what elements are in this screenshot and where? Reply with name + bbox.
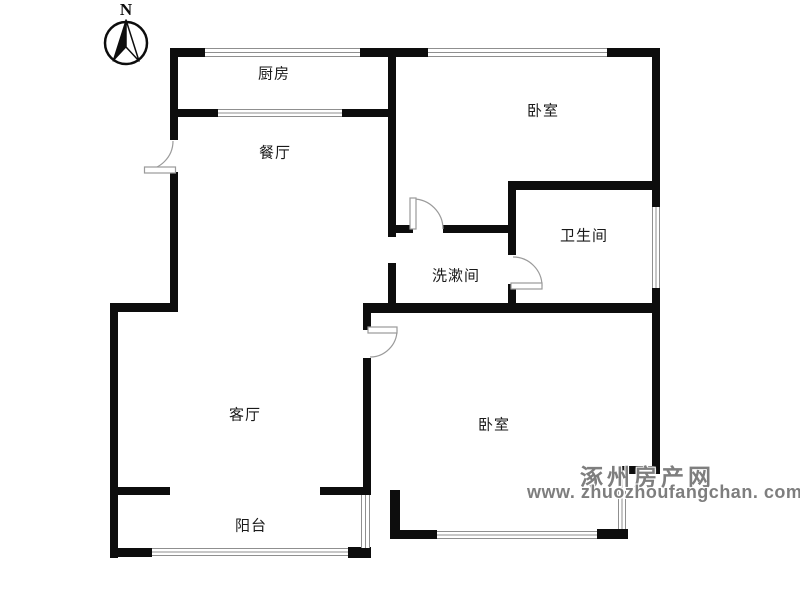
room-label-washroom: 洗漱间 — [432, 265, 480, 286]
entry-door — [144, 141, 176, 173]
room-label-kitchen: 厨房 — [258, 63, 290, 84]
bedroom-bottom-door — [368, 327, 397, 357]
room-label-living: 客厅 — [229, 404, 261, 425]
bathroom-door — [511, 257, 542, 289]
room-label-bathroom: 卫生间 — [560, 225, 608, 246]
room-label-dining: 餐厅 — [259, 142, 291, 163]
room-label-bedroom-top: 卧室 — [527, 100, 559, 121]
watermark-url: www. zhuozhoufangchan. com — [527, 482, 800, 503]
door-swings — [0, 0, 800, 600]
bedroom-top-door — [410, 198, 443, 229]
room-label-balcony: 阳台 — [235, 515, 267, 536]
room-label-bedroom-bottom: 卧室 — [478, 414, 510, 435]
floor-plan: N — [0, 0, 800, 600]
